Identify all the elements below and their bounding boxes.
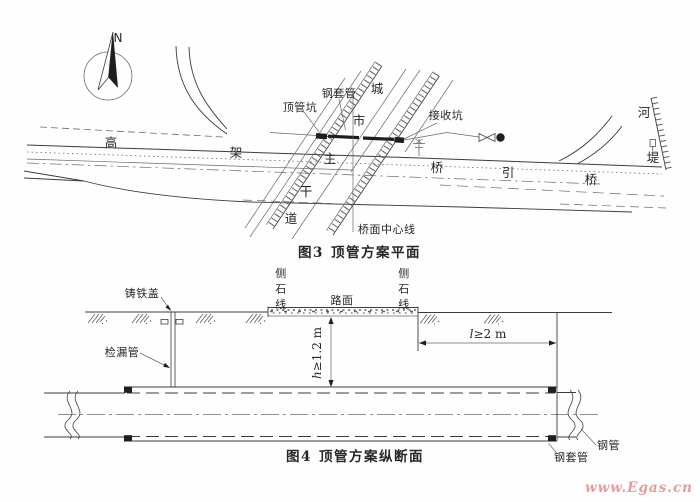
label-steel-pipe: 钢管 — [597, 438, 620, 452]
label-steel-casing-plan: 钢套管 — [322, 86, 357, 100]
label-city-road-char: 道 — [285, 211, 298, 226]
label-road-surface: 路面 — [331, 294, 354, 307]
casing-seal — [124, 435, 132, 441]
casing-seal — [124, 387, 132, 393]
label-curb-left-char: 侧 — [275, 267, 287, 280]
label-river-char: 堤 — [647, 150, 660, 165]
label-bridge-centerline: 桥面中心线 — [358, 222, 416, 236]
label-curb-right-char: 侧 — [398, 267, 410, 280]
road-surface-band — [268, 307, 418, 352]
pipe-break-right — [568, 390, 575, 440]
label-city-road-char: 主 — [324, 151, 337, 166]
figure3-caption-number: 图3 — [298, 245, 324, 261]
casing-seal — [548, 387, 556, 393]
casing-seal — [548, 435, 556, 441]
label-elevated-char: 架 — [230, 145, 243, 160]
label-receiving-pit: 接收坑 — [429, 108, 464, 122]
label-city-road-char: 干 — [300, 184, 313, 199]
elevated-road-lines — [24, 127, 666, 212]
pipe-break-left — [73, 391, 80, 439]
cast-iron-cover-leader — [161, 297, 172, 311]
valve-icon — [487, 134, 495, 142]
leak-pipe-leader — [140, 353, 170, 368]
length-dimension-text: l≥2 m — [470, 327, 507, 341]
pipe-break-right — [576, 390, 583, 440]
casing-segment-1 — [328, 136, 359, 137]
figure4-caption-number: 图4 — [286, 449, 312, 465]
label-curb-left-char: 线 — [275, 297, 287, 311]
label-curb-left-char: 石 — [275, 283, 287, 296]
depth-dimension-text: h≥1.2 m — [310, 326, 324, 379]
north-arrow — [84, 32, 132, 100]
label-city-road-char: 城 — [371, 81, 384, 96]
casing-segment-2 — [363, 138, 394, 139]
label-cast-iron-cover: 铸铁盖 — [125, 286, 160, 300]
label-leak-check-pipe: 检漏管 — [105, 345, 140, 359]
label-jacking-pit: 顶管坑 — [283, 100, 318, 114]
label-steel-casing-section: 钢套管 — [554, 450, 589, 464]
label-approach-char: 引 — [502, 165, 515, 180]
label-approach-char: 桥 — [585, 172, 598, 187]
watermark: www.Egas.cn — [585, 480, 693, 496]
label-city-road-char: 市 — [353, 113, 366, 128]
receiving-pit-mark — [395, 140, 405, 141]
leak-check-pipe — [161, 312, 183, 387]
label-curb-right-char: 石 — [398, 283, 410, 296]
length-dimension — [419, 340, 556, 345]
pipe-endpoint-dot — [496, 133, 504, 141]
label-elevated-char: 高 — [105, 135, 118, 150]
north-label: N — [114, 31, 123, 45]
label-curb-right-char: 线 — [398, 297, 410, 311]
pipe-break-left — [65, 391, 72, 439]
scanned-figure-page: N — [0, 0, 700, 502]
benchmark-symbol — [413, 139, 425, 156]
figure4-caption-title: 顶管方案纵断面 — [319, 448, 424, 465]
figure4-section: h≥1.2 m l≥2 m — [44, 267, 620, 465]
figure3-plan: N — [24, 31, 669, 261]
engineering-drawing: N — [0, 0, 700, 502]
valve-icon — [479, 134, 487, 142]
label-river-char: 河 — [638, 105, 651, 120]
jacking-pit-mark — [316, 136, 327, 137]
label-elevated-char: 桥 — [431, 160, 444, 175]
figure3-caption-title: 顶管方案平面 — [331, 244, 421, 261]
depth-dimension — [328, 317, 333, 387]
ramp-curves — [176, 46, 622, 164]
